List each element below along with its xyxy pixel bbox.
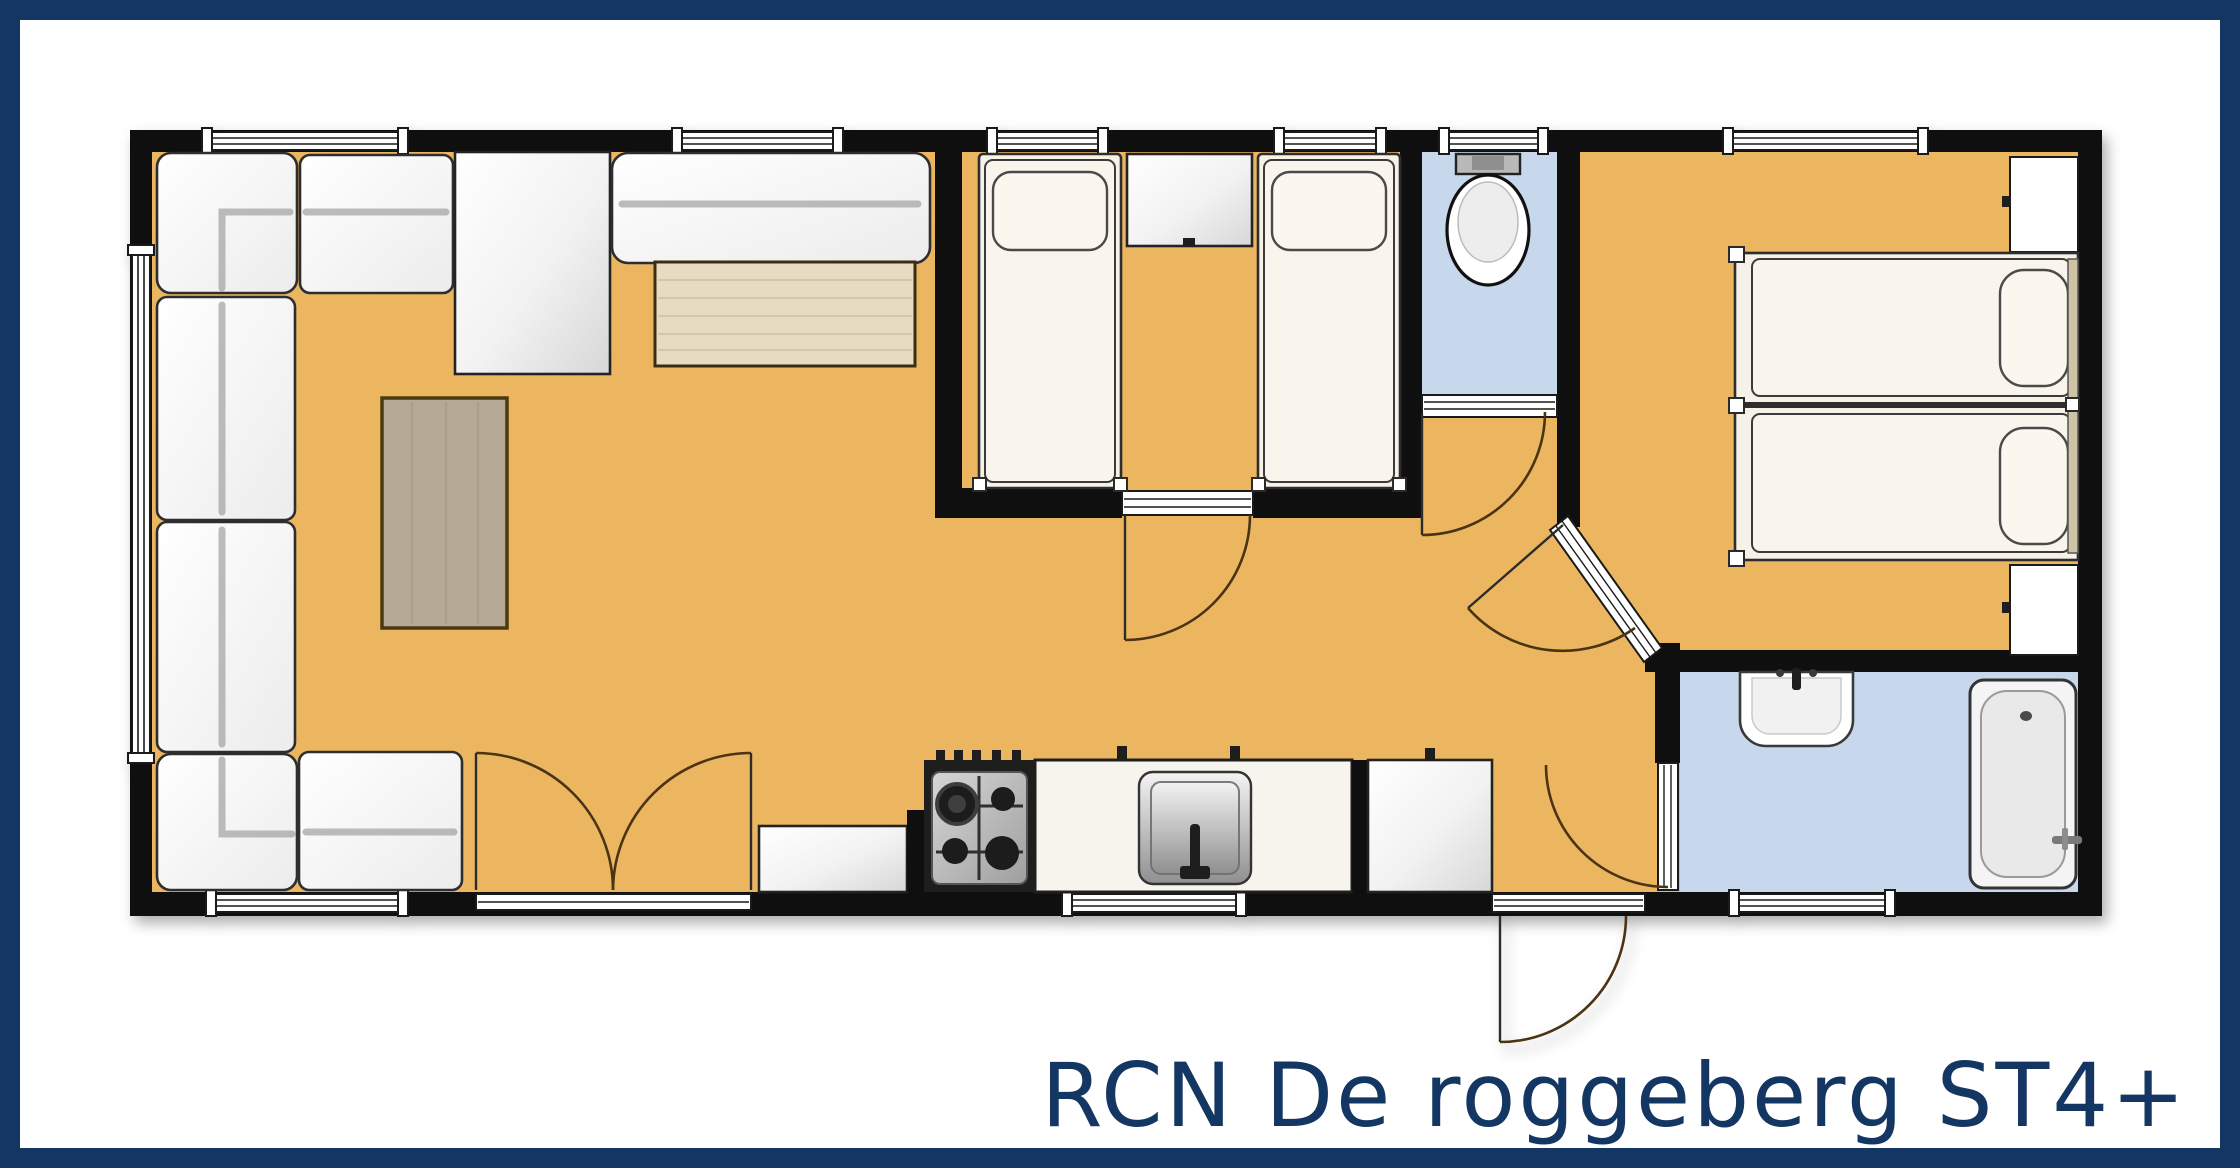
toilet-room xyxy=(1447,154,1529,285)
window-bottom-kitchen xyxy=(1062,890,1246,916)
floorplan-image xyxy=(0,0,2240,1168)
tv-cabinet xyxy=(455,152,610,374)
single-bed-middle-1 xyxy=(973,154,1127,491)
window-bottom-bathroom xyxy=(1729,890,1895,916)
wash-basin xyxy=(1740,668,1853,746)
toilet-door-threshold xyxy=(1422,395,1557,417)
counter-knob xyxy=(1230,746,1240,759)
cabinet-knob xyxy=(1425,748,1435,761)
wardrobe-handle xyxy=(2002,196,2011,207)
screenshot-canvas: RCN De roggeberg ST4+ xyxy=(0,0,2240,1168)
dining-table xyxy=(655,262,915,366)
plan-title: RCN De roggeberg ST4+ xyxy=(1041,1044,2188,1147)
sofa-seat-bottom xyxy=(299,752,462,890)
wardrobe-handle xyxy=(2002,602,2011,613)
sofa-seat-left-2 xyxy=(157,522,295,752)
window-top-1 xyxy=(202,128,408,154)
sofa-seat-top xyxy=(300,155,453,293)
window-top-6 xyxy=(1723,128,1928,154)
sofa-corner-top-left xyxy=(157,153,297,293)
window-left xyxy=(128,245,154,763)
coffee-table xyxy=(382,398,507,628)
toilet-wc xyxy=(1447,154,1529,285)
tub-drain-icon xyxy=(2020,711,2032,721)
bench-sofa xyxy=(612,153,930,263)
window-bottom-1 xyxy=(206,890,408,916)
french-door-threshold xyxy=(476,894,751,910)
window-top-3 xyxy=(987,128,1108,154)
sofa-corner-bottom-left xyxy=(157,754,297,890)
kitchen-cabinet-left xyxy=(759,826,907,892)
kitchen-sink-counter xyxy=(1035,746,1352,892)
nightstand xyxy=(1127,154,1252,246)
bathtub xyxy=(1970,680,2082,888)
window-top-4 xyxy=(1274,128,1386,154)
floorplan xyxy=(128,128,2102,1042)
nightstand-handle xyxy=(1183,238,1195,247)
entrance-door-swing xyxy=(1500,916,1626,1042)
twin-beds-right xyxy=(1729,247,2079,566)
wardrobe-top xyxy=(2010,157,2078,252)
entrance-door-threshold xyxy=(1492,894,1645,912)
single-bed-middle-2 xyxy=(1252,154,1406,491)
bathroom-door-threshold xyxy=(1658,763,1678,890)
window-top-2 xyxy=(672,128,843,154)
counter-knob xyxy=(1117,746,1127,759)
basin-faucet-icon xyxy=(1792,668,1801,690)
kitchen-cabinet-right xyxy=(1368,760,1492,892)
gas-hob xyxy=(924,750,1035,892)
sofa-seat-left-1 xyxy=(157,297,295,520)
middle-bedroom-door-threshold xyxy=(1122,491,1253,515)
wardrobe-bottom xyxy=(2010,565,2078,655)
window-top-5 xyxy=(1439,128,1548,154)
